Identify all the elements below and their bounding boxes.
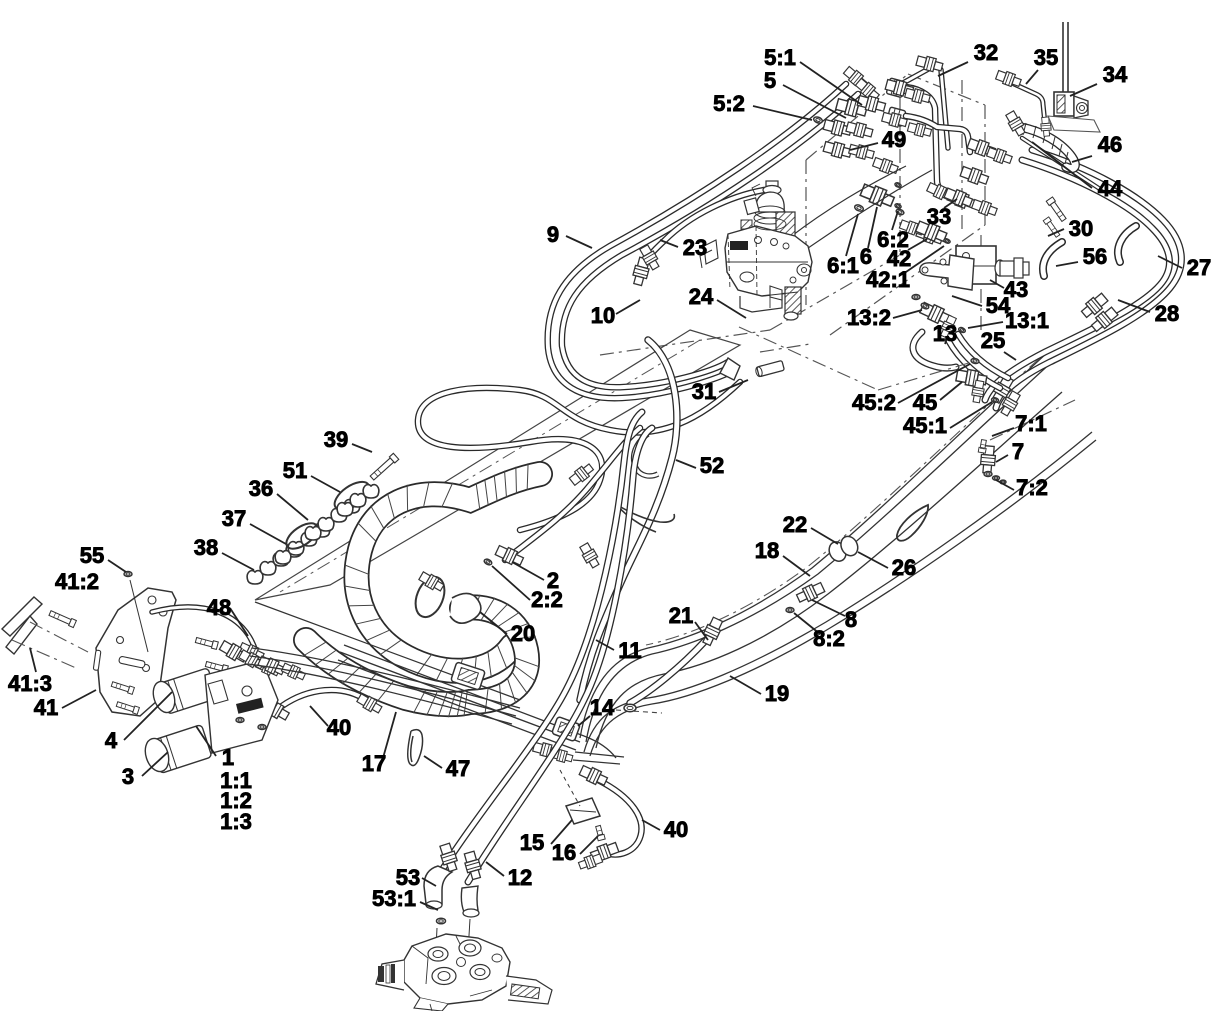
svg-text:41: 41 (34, 695, 58, 720)
svg-text:9: 9 (547, 222, 559, 247)
svg-text:5:2: 5:2 (713, 91, 745, 116)
svg-text:31: 31 (692, 379, 716, 404)
svg-text:25: 25 (981, 328, 1005, 353)
svg-text:21: 21 (669, 603, 693, 628)
svg-text:7:2: 7:2 (1016, 475, 1048, 500)
svg-text:35: 35 (1034, 45, 1058, 70)
svg-text:6:1: 6:1 (827, 253, 859, 278)
svg-text:56: 56 (1083, 244, 1107, 269)
svg-text:7: 7 (1012, 439, 1024, 464)
svg-text:5:1: 5:1 (764, 45, 796, 70)
svg-text:48: 48 (207, 595, 231, 620)
svg-text:38: 38 (194, 535, 218, 560)
svg-text:8: 8 (845, 607, 857, 632)
svg-text:42:1: 42:1 (866, 267, 910, 292)
svg-text:32: 32 (974, 40, 998, 65)
svg-text:12: 12 (508, 865, 532, 890)
svg-text:55: 55 (80, 543, 104, 568)
svg-text:39: 39 (324, 427, 348, 452)
svg-text:3: 3 (122, 764, 134, 789)
svg-text:14: 14 (590, 695, 615, 720)
svg-text:20: 20 (511, 621, 535, 646)
svg-text:49: 49 (882, 127, 906, 152)
svg-text:28: 28 (1155, 301, 1179, 326)
svg-text:24: 24 (689, 284, 714, 309)
svg-text:36: 36 (249, 476, 273, 501)
svg-text:10: 10 (591, 303, 615, 328)
svg-text:52: 52 (700, 453, 724, 478)
svg-text:37: 37 (222, 506, 246, 531)
svg-text:8:2: 8:2 (813, 626, 845, 651)
svg-text:44: 44 (1098, 176, 1123, 201)
svg-text:45:1: 45:1 (903, 413, 947, 438)
svg-text:47: 47 (446, 756, 470, 781)
svg-text:22: 22 (783, 512, 807, 537)
svg-text:19: 19 (765, 681, 789, 706)
svg-text:40: 40 (327, 715, 351, 740)
svg-text:16: 16 (552, 840, 576, 865)
svg-text:45:2: 45:2 (852, 390, 896, 415)
svg-text:2:2: 2:2 (531, 587, 563, 612)
svg-text:15: 15 (520, 830, 544, 855)
svg-text:46: 46 (1098, 132, 1122, 157)
svg-text:6: 6 (860, 244, 872, 269)
svg-text:1:3: 1:3 (220, 809, 252, 834)
svg-text:41:3: 41:3 (8, 671, 52, 696)
svg-text:4: 4 (105, 728, 118, 753)
svg-text:13: 13 (933, 321, 957, 346)
svg-text:23: 23 (683, 235, 707, 260)
svg-text:45: 45 (913, 390, 937, 415)
svg-text:53:1: 53:1 (372, 886, 416, 911)
svg-text:7:1: 7:1 (1015, 411, 1047, 436)
svg-text:13:1: 13:1 (1005, 308, 1049, 333)
svg-text:18: 18 (755, 538, 779, 563)
svg-text:40: 40 (664, 817, 688, 842)
svg-text:1: 1 (222, 745, 234, 770)
svg-text:51: 51 (283, 458, 307, 483)
svg-text:11: 11 (618, 638, 641, 663)
svg-text:26: 26 (892, 555, 916, 580)
svg-text:33: 33 (927, 204, 951, 229)
svg-text:27: 27 (1187, 255, 1211, 280)
svg-text:17: 17 (362, 751, 386, 776)
svg-text:5: 5 (764, 68, 776, 93)
svg-text:41:2: 41:2 (55, 569, 99, 594)
svg-text:34: 34 (1103, 62, 1128, 87)
svg-text:13:2: 13:2 (847, 305, 891, 330)
svg-text:30: 30 (1069, 216, 1093, 241)
